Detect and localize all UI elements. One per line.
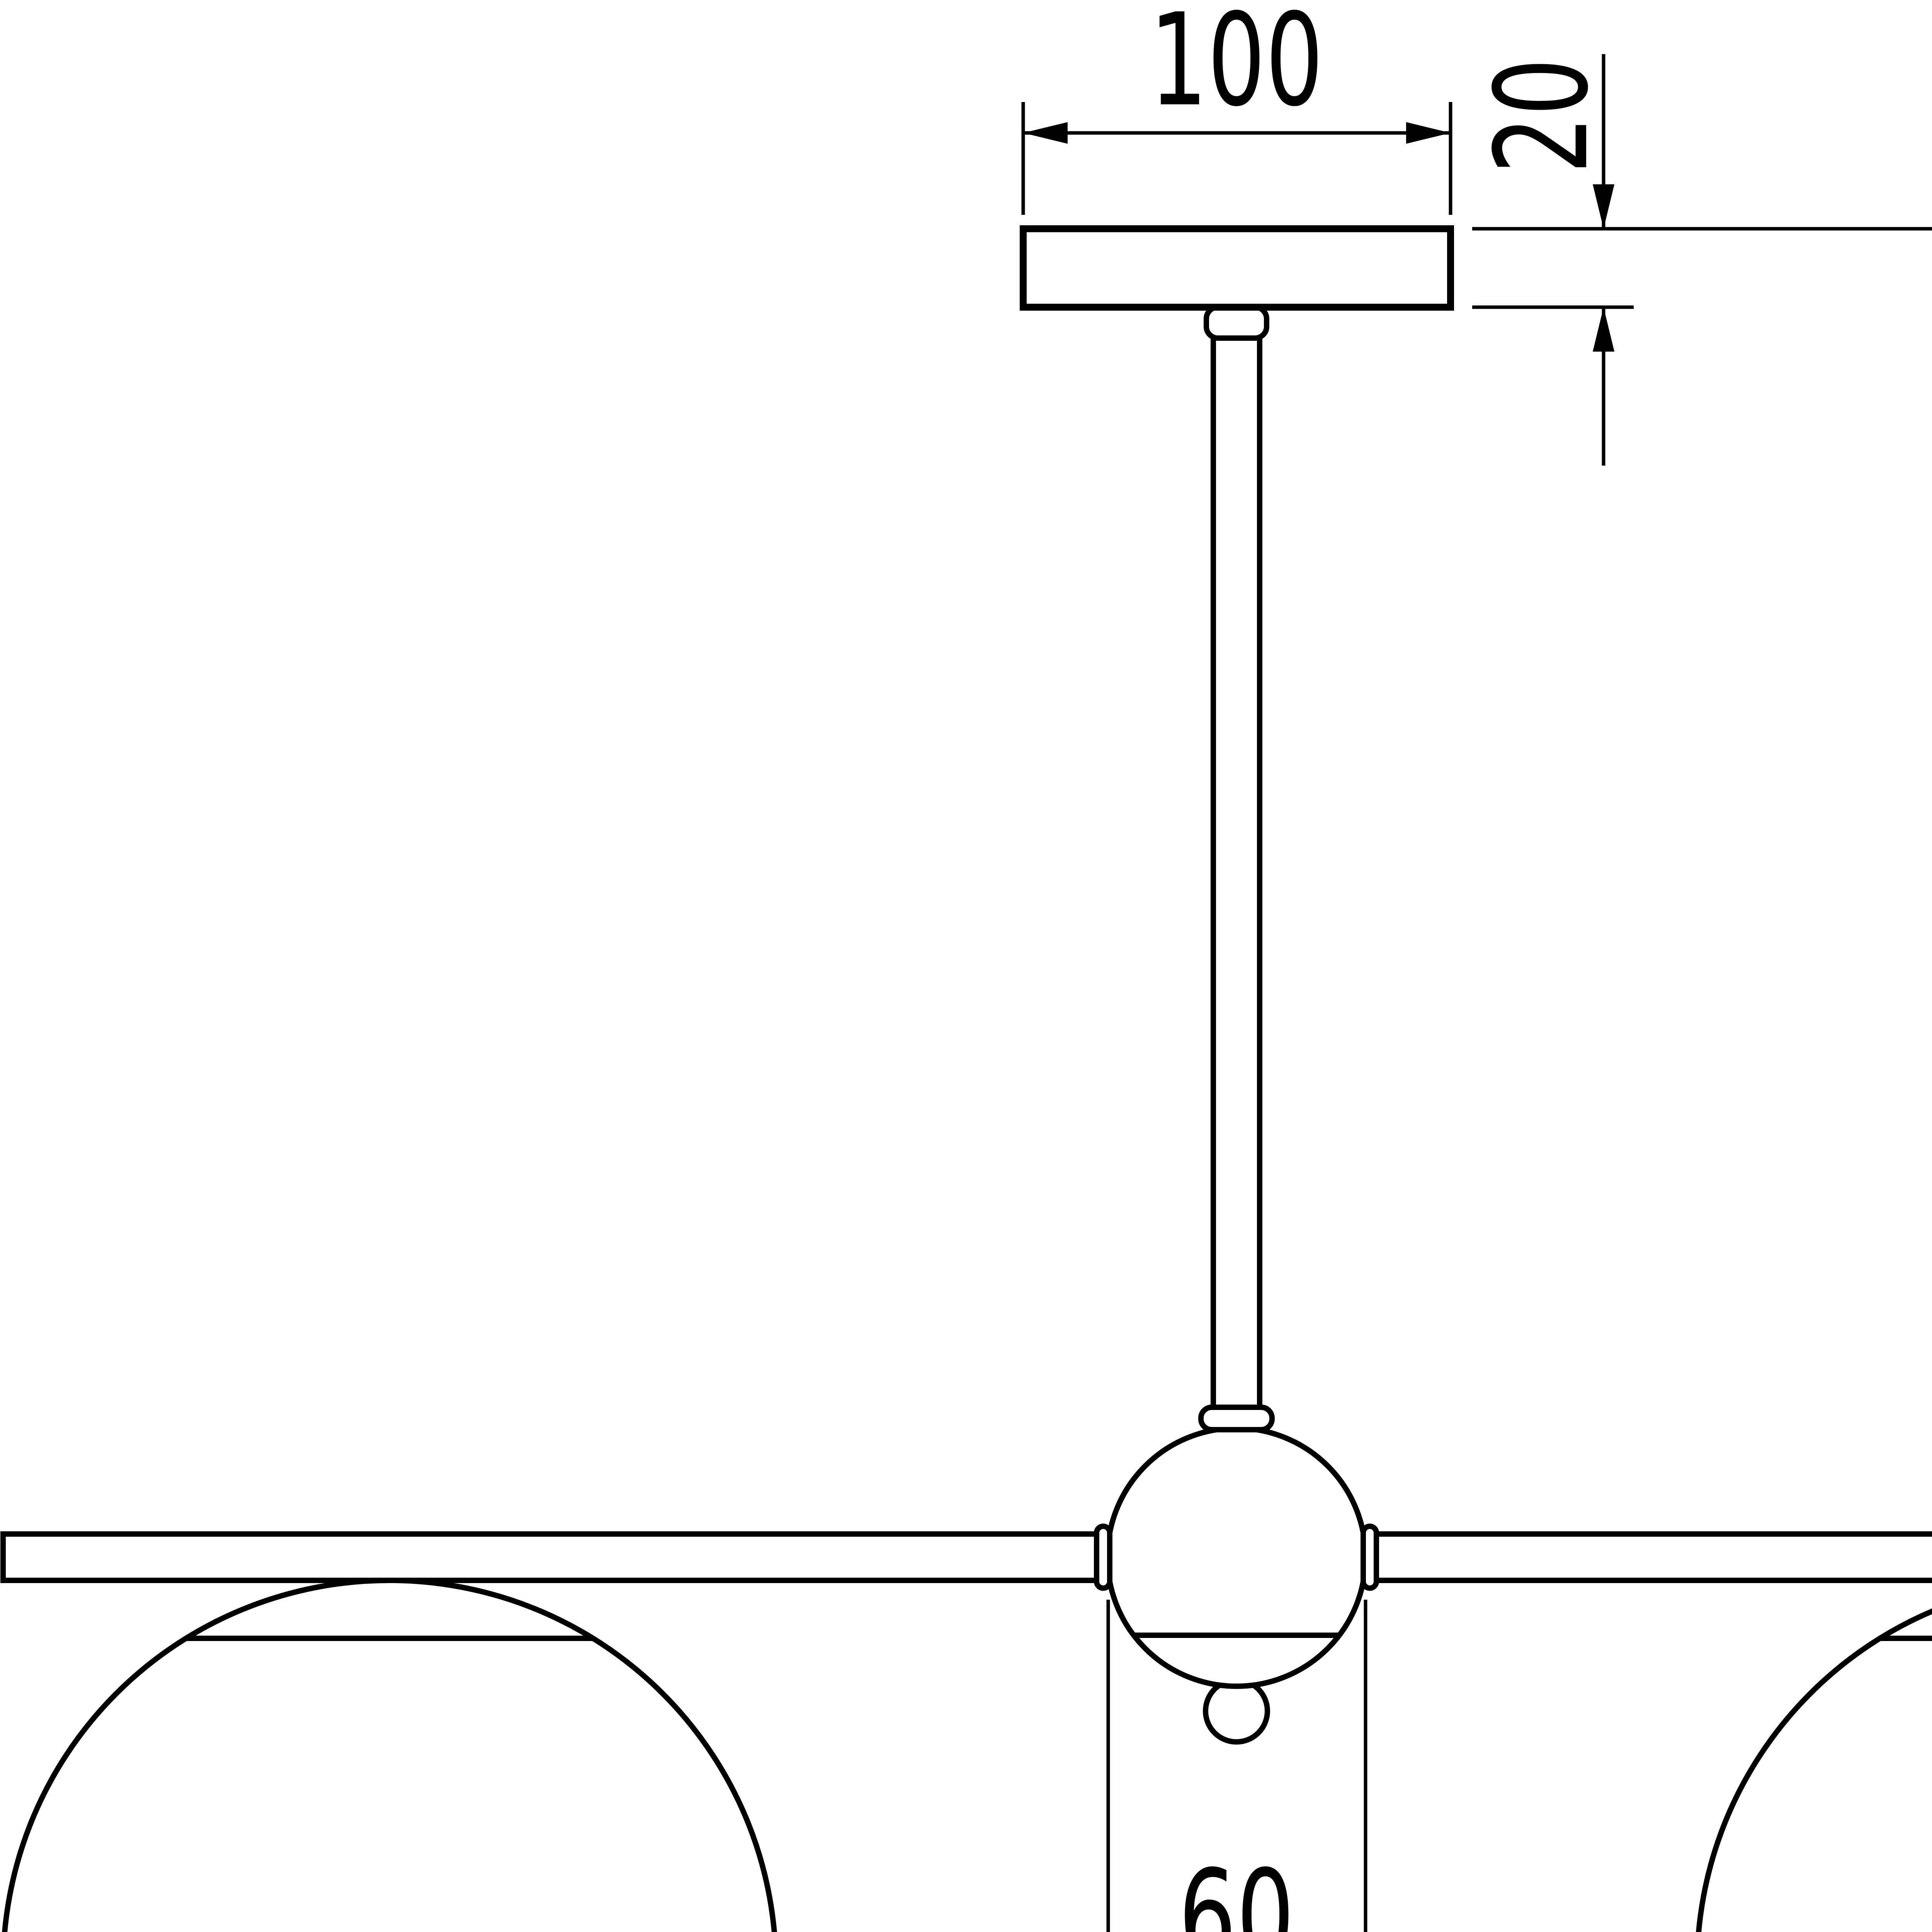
dimension-label-60: 60: [1179, 1843, 1294, 1932]
rod-top-collar: [1206, 307, 1267, 338]
left-globe-shade: [3, 1580, 776, 1932]
arrowhead-right-icon: [1406, 122, 1451, 144]
arrowhead-left-icon: [1023, 122, 1068, 144]
suspension-rod: [1213, 307, 1260, 1430]
dimension-label-100: 100: [1150, 0, 1323, 134]
lamp-fixture: [3, 229, 1932, 1932]
right-arm-collar: [1363, 1526, 1376, 1588]
right-globe-shade: [1697, 1580, 1932, 1932]
technical-drawing-ceiling-lamp: 100 20 500 60 180: [0, 0, 1932, 1932]
arrowhead-down-icon: [1593, 184, 1614, 229]
dimension-label-20: 20: [1468, 58, 1616, 174]
rod-bottom-collar: [1201, 1407, 1272, 1430]
center-hub-sphere: [1107, 1428, 1366, 1686]
dimension-canopy-width: 100: [1023, 0, 1451, 215]
horizontal-arm-bar: [3, 1534, 1932, 1580]
bottom-knob: [1206, 1680, 1267, 1742]
dimension-canopy-thickness: 20: [1468, 54, 1932, 466]
left-arm-collar: [1097, 1526, 1110, 1588]
drawing-canvas: 100 20 500 60 180: [0, 0, 1932, 1932]
arrowhead-up-icon: [1593, 307, 1614, 352]
rotated-label-group: 20: [1468, 58, 1616, 174]
ceiling-canopy: [1023, 229, 1451, 307]
